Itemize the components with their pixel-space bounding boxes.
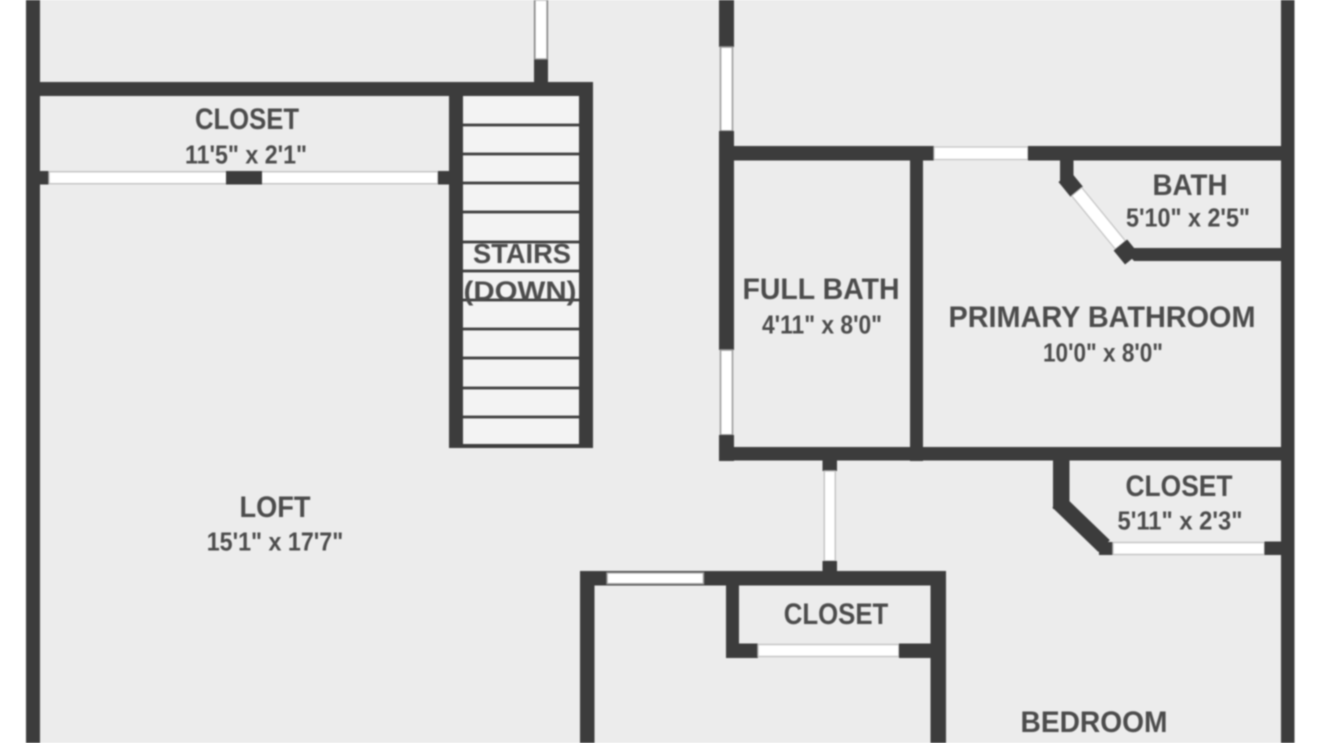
svg-text:10'0" x 8'0": 10'0" x 8'0" (1043, 338, 1163, 368)
svg-text:FULL BATH: FULL BATH (743, 273, 900, 306)
svg-text:CLOSET: CLOSET (195, 103, 299, 136)
svg-text:11'5" x 2'1": 11'5" x 2'1" (185, 140, 307, 170)
svg-text:4'11" x 8'0": 4'11" x 8'0" (762, 310, 882, 340)
svg-text:BATH: BATH (1153, 169, 1228, 202)
svg-text:LOFT: LOFT (240, 491, 311, 524)
svg-text:CLOSET: CLOSET (784, 598, 889, 631)
svg-text:CLOSET: CLOSET (1126, 470, 1233, 503)
svg-text:5'10" x 2'5": 5'10" x 2'5" (1126, 203, 1250, 233)
svg-text:15'1" x 17'7": 15'1" x 17'7" (207, 527, 344, 557)
svg-text:BEDROOM: BEDROOM (1021, 706, 1168, 739)
svg-text:(DOWN): (DOWN) (464, 276, 577, 306)
svg-text:PRIMARY BATHROOM: PRIMARY BATHROOM (949, 301, 1256, 334)
svg-text:5'11" x 2'3": 5'11" x 2'3" (1118, 506, 1243, 536)
svg-text:STAIRS: STAIRS (473, 238, 571, 269)
